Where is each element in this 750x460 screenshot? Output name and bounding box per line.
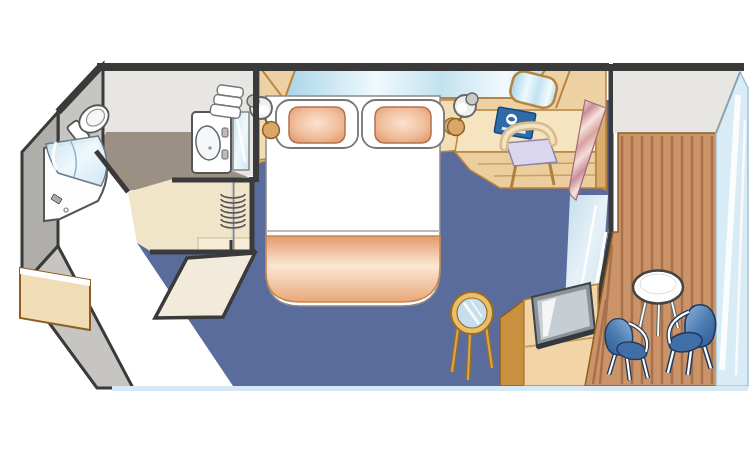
pillow-left [276, 100, 358, 148]
bathtub [44, 136, 107, 221]
bottom-mask [0, 391, 750, 460]
headboard-mirror [285, 70, 545, 98]
bed [266, 96, 444, 306]
pillow-right [362, 100, 444, 148]
bathroom-mirror [233, 112, 249, 170]
sink-vanity [192, 112, 231, 173]
blanket [266, 231, 440, 302]
floor-plan-svg [0, 0, 750, 460]
bottom-edge-strip [112, 386, 748, 391]
stateroom-floor-plan [0, 0, 750, 460]
glass-railing [716, 72, 748, 386]
